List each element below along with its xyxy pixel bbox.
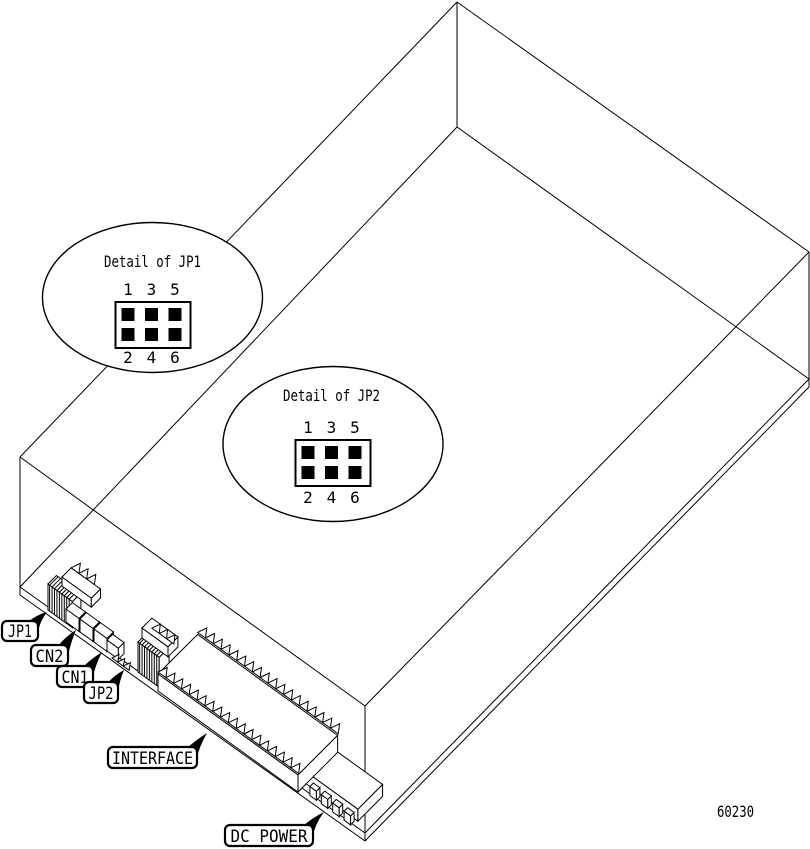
edge-line bbox=[457, 2, 809, 252]
detail-jp1-jumper-block bbox=[116, 302, 191, 348]
jumper-pin-pad bbox=[169, 308, 182, 321]
callout-cn2-label: CN2 bbox=[36, 647, 64, 667]
jumper-pin-pad bbox=[302, 446, 315, 459]
callout-jp1-label: JP1 bbox=[8, 622, 32, 642]
jumper-pin-pad bbox=[325, 446, 338, 459]
detail-jp2-callout: Detail of JP2 1 3 5 2 4 6 bbox=[223, 367, 443, 522]
jumper-pin-pad bbox=[145, 328, 158, 341]
jumper-pin-pad bbox=[122, 308, 135, 321]
callout-jp1: JP1 bbox=[2, 612, 47, 642]
edge-line bbox=[457, 127, 809, 379]
jumper-pin-pad bbox=[349, 446, 362, 459]
callout-jp2-label: JP2 bbox=[89, 684, 114, 704]
detail-jp1-pin-number: 2 bbox=[123, 348, 133, 367]
detail-jp2-jumper-block bbox=[296, 440, 371, 486]
detail-jp2-title: Detail of JP2 bbox=[283, 386, 380, 405]
callout-dc-power-label: DC POWER bbox=[231, 827, 309, 847]
diagram-page: Detail of JP1 1 3 5 2 4 6 Detail of JP2 … bbox=[0, 0, 810, 849]
detail-jp1-title: Detail of JP1 bbox=[104, 252, 201, 271]
jumper-pin-pad bbox=[122, 328, 135, 341]
detail-jp2-pin-number: 3 bbox=[327, 418, 337, 437]
detail-jp1-callout: Detail of JP1 1 3 5 2 4 6 bbox=[43, 223, 263, 373]
detail-jp2-pin-number: 4 bbox=[327, 488, 337, 507]
detail-jp2-pin-number: 2 bbox=[303, 488, 313, 507]
detail-jp1-pin-number: 3 bbox=[147, 280, 157, 299]
detail-jp1-pin-number: 1 bbox=[123, 280, 133, 299]
jumper-pin-pad bbox=[302, 466, 315, 479]
detail-jp2-pin-number: 1 bbox=[303, 418, 313, 437]
jumper-pin-pad bbox=[169, 328, 182, 341]
drive-isometric-diagram: Detail of JP1 1 3 5 2 4 6 Detail of JP2 … bbox=[0, 0, 810, 849]
jumper-pin-pad bbox=[145, 308, 158, 321]
callout-dc-power: DC POWER bbox=[225, 812, 324, 847]
jumper-pin-pad bbox=[349, 466, 362, 479]
detail-jp2-pin-number: 6 bbox=[350, 488, 360, 507]
figure-number: 60230 bbox=[717, 802, 754, 821]
callout-interface: INTERFACE bbox=[108, 733, 207, 769]
callout-interface-label: INTERFACE bbox=[112, 749, 193, 769]
detail-jp1-pin-number: 5 bbox=[170, 280, 180, 299]
jumper-pin-pad bbox=[325, 466, 338, 479]
detail-jp1-pin-number: 6 bbox=[170, 348, 180, 367]
detail-jp1-pin-number: 4 bbox=[147, 348, 157, 367]
detail-jp2-pin-number: 5 bbox=[350, 418, 360, 437]
